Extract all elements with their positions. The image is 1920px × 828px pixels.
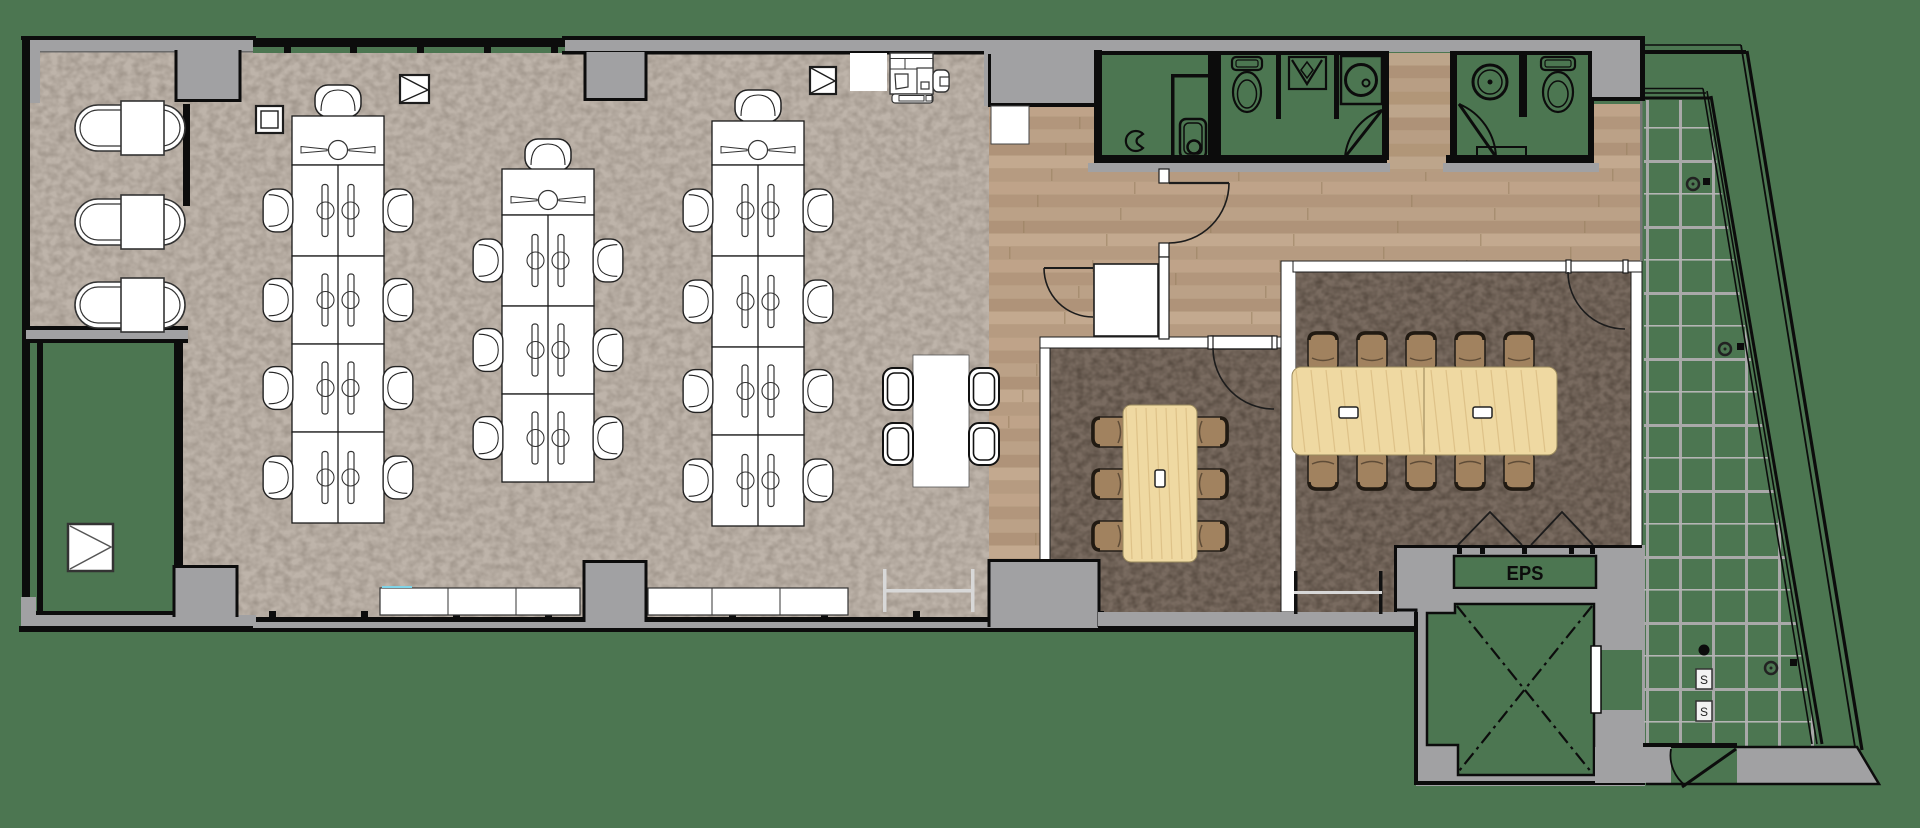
svg-text:S: S	[1700, 673, 1708, 687]
svg-text:EPS: EPS	[1507, 563, 1544, 585]
svg-text:S: S	[1700, 705, 1708, 719]
